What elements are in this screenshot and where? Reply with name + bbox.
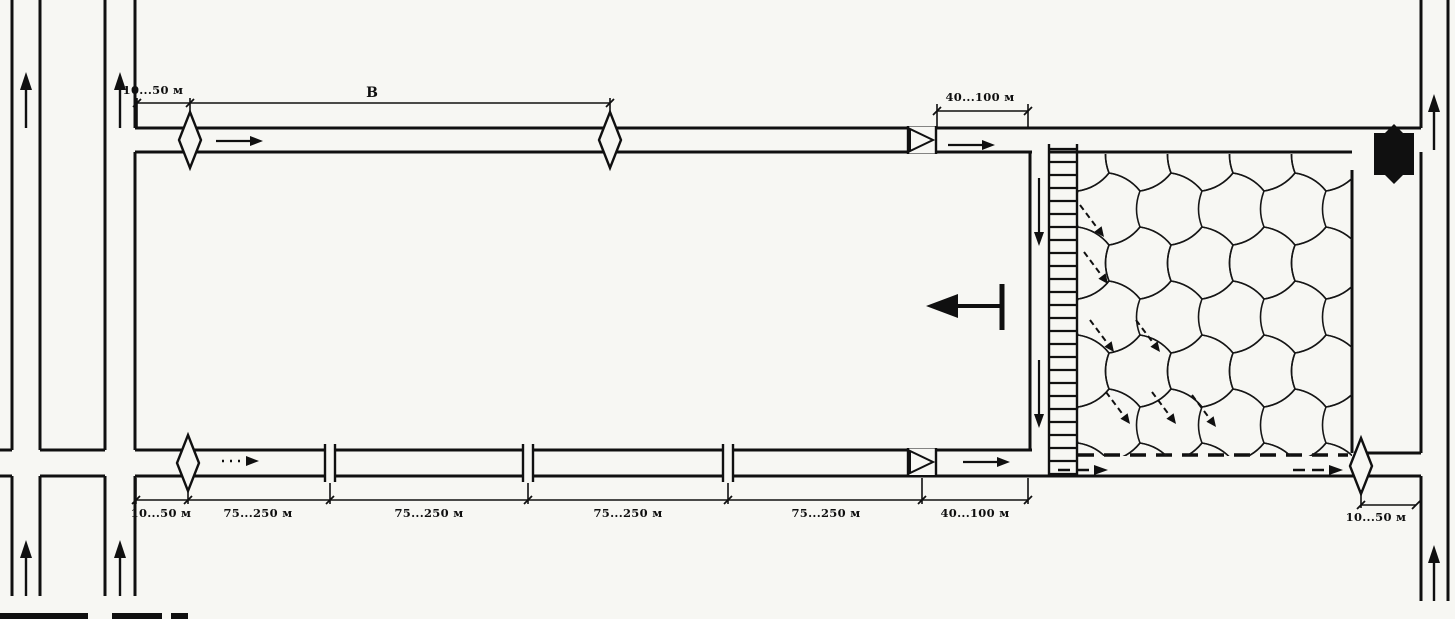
dim-label-bottom-4: 75...250 м [791,506,860,520]
airflow-right-arrow-top-road [216,136,263,146]
airflow-up-arrow-road-a-top [20,72,32,128]
ventilation-scheme-diagram: 10...50 м В 40...100 м 10...50 м 75...25… [0,0,1455,619]
stopping-icon-3 [722,444,734,482]
ventilation-door-icon-bottom [908,448,936,476]
support-rungs [1049,146,1077,476]
powered-support-icon [1049,144,1077,477]
airflow-up-arrow-road-r-bottom [1428,545,1440,601]
airflow-dotted-arrow-bottom-road [222,456,259,466]
dim-label-top-regulator: 40...100 м [945,90,1014,104]
panel-length-label: В [366,85,378,101]
airflow-up-arrow-road-b-bottom [114,540,126,596]
dim-label-bottom-0: 10...50 м [131,506,192,520]
airflow-up-arrow-road-a-bottom [20,540,32,596]
face-advance-direction-arrow [926,284,1002,330]
ventilation-door-icon-top [908,126,936,154]
cropped-caption-fragment [0,613,188,619]
scheme-canvas: 10...50 м В 40...100 м 10...50 м 75...25… [0,0,1455,619]
dim-label-bottom-5: 40...100 м [940,506,1009,520]
measuring-station-icon-top-mid [599,112,621,168]
airflow-right-arrow-top-road-face [948,140,995,150]
airflow-down-arrow-face-lower [1034,360,1044,428]
dim-label-top-entry: 10...50 м [123,83,184,97]
airflow-up-arrow-road-r-top [1428,94,1440,150]
airflow-up-arrow-road-b-top [114,72,126,128]
measuring-station-icon-bottom-left [177,435,199,491]
measuring-station-icon-top-left [179,112,201,168]
permanent-stopping-icon [1374,124,1414,184]
stopping-icon-2 [522,444,534,482]
airflow-down-arrow-face-upper [1034,178,1044,246]
advance-arrow-head [926,294,958,318]
dim-label-bottom-3: 75...250 м [593,506,662,520]
stopping-icon-1 [324,444,336,482]
airflow-right-arrow-bottom-road-face [963,457,1010,467]
dim-label-bottom-2: 75...250 м [394,506,463,520]
dim-label-bottom-1: 75...250 м [223,506,292,520]
dim-label-tail-entry: 10...50 м [1346,510,1407,524]
airflow-dashed-arrow-tail-road-right [1293,465,1343,475]
